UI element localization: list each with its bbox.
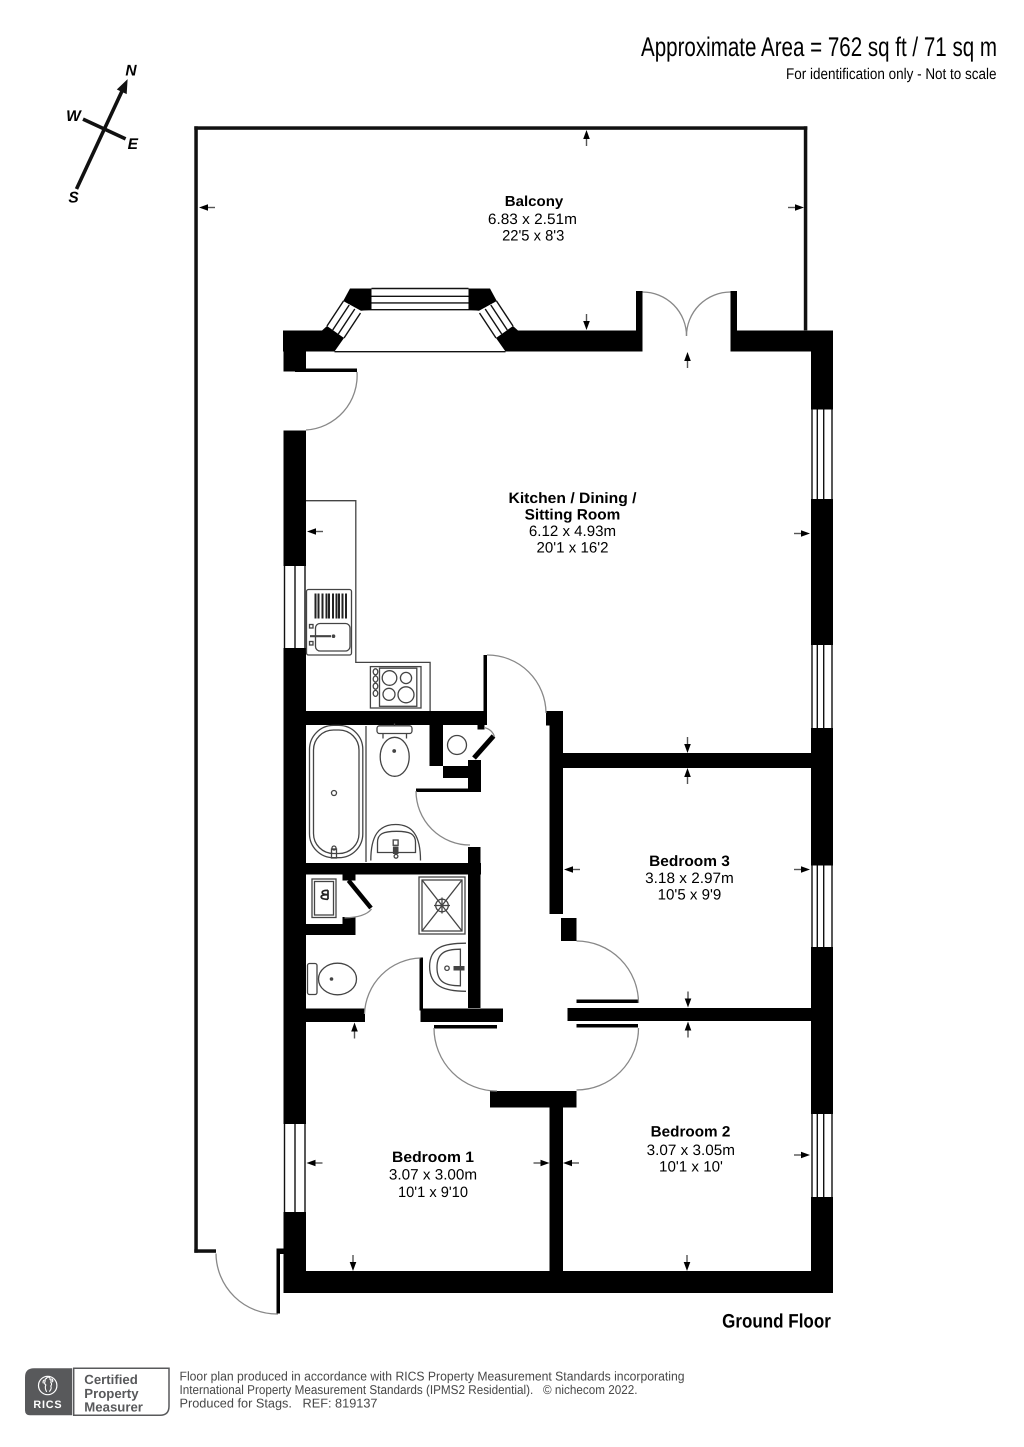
svg-text:For identification only - Not: For identification only - Not to scale [786,66,997,83]
svg-text:10'5 x 9'9: 10'5 x 9'9 [658,887,722,904]
svg-text:Ground Floor: Ground Floor [722,1311,831,1333]
svg-text:Bedroom 1: Bedroom 1 [392,1149,474,1166]
svg-text:Sitting Room: Sitting Room [525,507,621,524]
svg-text:RICS: RICS [33,1399,62,1411]
svg-text:Measurer: Measurer [84,1399,143,1414]
svg-text:Bedroom 3: Bedroom 3 [649,853,730,870]
svg-text:E: E [128,136,139,153]
svg-text:Balcony: Balcony [505,194,564,210]
svg-text:N: N [125,63,137,80]
svg-text:10'1 x 10': 10'1 x 10' [659,1158,723,1175]
svg-text:Produced for Stags. REF: 819: Produced for Stags. REF: 819137 [180,1396,378,1411]
svg-text:3.07 x 3.05m: 3.07 x 3.05m [647,1142,735,1159]
svg-text:3.18 x 2.97m: 3.18 x 2.97m [645,870,734,887]
svg-text:10'1 x 9'10: 10'1 x 9'10 [398,1184,468,1201]
svg-text:22'5 x 8'3: 22'5 x 8'3 [502,227,564,244]
svg-text:3.07 x 3.00m: 3.07 x 3.00m [389,1167,477,1184]
svg-text:S: S [68,189,79,206]
svg-text:Kitchen / Dining /: Kitchen / Dining / [509,490,638,507]
svg-text:Approximate Area = 762 sq ft /: Approximate Area = 762 sq ft / 71 sq m [641,32,997,62]
svg-text:W: W [66,108,82,125]
svg-text:6.12 x 4.93m: 6.12 x 4.93m [529,523,616,540]
svg-text:Certified: Certified [84,1372,138,1387]
svg-text:6.83 x 2.51m: 6.83 x 2.51m [488,211,577,228]
svg-text:20'1 x 16'2: 20'1 x 16'2 [537,540,609,557]
svg-text:Bedroom 2: Bedroom 2 [651,1124,731,1141]
